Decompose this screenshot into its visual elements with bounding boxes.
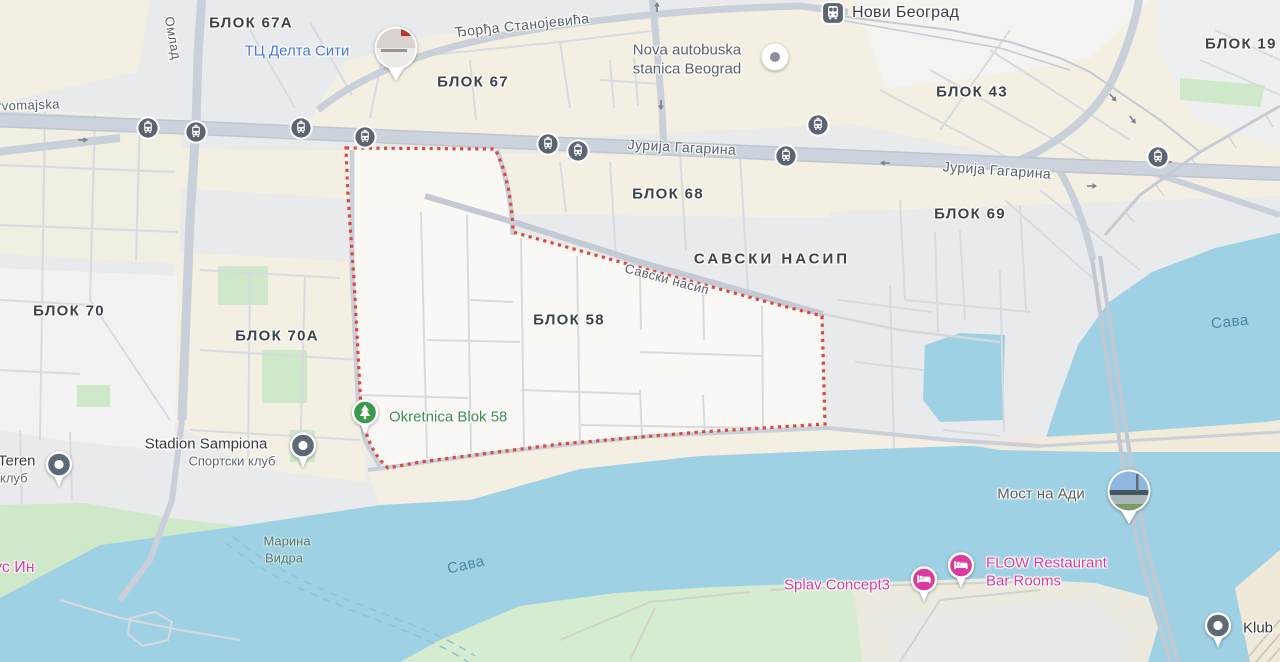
tram-stop-icon[interactable] [566,139,590,163]
label-delta-city[interactable]: ТЦ Делта Сити [245,43,350,60]
pin-tree-icon[interactable] [350,398,380,438]
photo-circle-icon[interactable] [1104,468,1154,530]
label-blok69: БЛОК 69 [934,206,1006,223]
label-splav-concept3[interactable]: Splav Concept3 [784,577,890,594]
label-stadion-sampiona[interactable]: Stadion Sampiona [145,436,268,453]
pin-dot-icon[interactable] [44,450,74,490]
pin-dot-icon[interactable] [288,431,318,471]
label-blok67: БЛОК 67 [437,74,509,91]
tram-stop-icon[interactable] [289,116,313,140]
pond [923,333,1005,422]
train-station-icon[interactable] [821,1,845,25]
label-klub-right[interactable]: Klub [1243,620,1273,637]
tram-stop-icon[interactable] [536,132,560,156]
transit-hub-dot-icon[interactable] [759,41,791,73]
label-sportski-klub: Спортски клуб [189,454,276,469]
label-us-in[interactable]: ус Ин [0,559,35,577]
tram-stop-icon[interactable] [806,113,830,137]
tram-stop-icon[interactable] [774,144,798,168]
label-bus-station-line2[interactable]: stanica Beograd [633,60,741,79]
pin-dot-icon[interactable] [1203,611,1233,651]
tram-stop-icon[interactable] [184,120,208,144]
label-blok19: БЛОК 19 [1205,36,1277,53]
label-street-prvomajska: rvomajska [0,96,60,113]
label-blok68: БЛОК 68 [632,186,704,203]
tram-stop-icon[interactable] [1146,145,1170,169]
photo-circle-icon[interactable] [371,25,421,87]
blok70-area [0,268,178,452]
label-novi-beograd-station[interactable]: Нови Београд [852,4,959,22]
label-bus-station-line1[interactable]: Nova autobuska [633,41,741,60]
label-flow-restaurant-line1[interactable]: FLOW Restaurant [986,555,1107,572]
label-marina-vidra-line2: Видра [265,551,303,566]
label-okretnica-blok58[interactable]: Okretnica Blok 58 [389,409,507,426]
label-blok43: БЛОК 43 [936,84,1008,101]
tram-stop-icon[interactable] [353,125,377,149]
map-viewport[interactable]: БЛОК 67А ТЦ Делта Сити Ђорђа Станојевића… [0,0,1280,662]
label-klub-left: клуб [0,471,28,486]
label-teren[interactable]: Teren [0,453,36,470]
pin-bed-icon[interactable] [909,565,939,605]
label-blok70a: БЛОК 70А [235,328,319,345]
label-blok58: БЛОК 58 [533,312,605,329]
label-savski-nasip-area: САВСКИ НАСИП [694,251,850,268]
label-blok70: БЛОК 70 [33,303,105,320]
label-blok67a: БЛОК 67А [209,15,293,32]
label-most-na-adi[interactable]: Мост на Ади [997,485,1084,504]
label-marina-vidra-line1: Марина [263,534,310,549]
tram-stop-icon[interactable] [136,116,160,140]
pin-bed-icon[interactable] [946,551,976,591]
label-flow-restaurant-line2[interactable]: Bar Rooms [986,573,1061,590]
